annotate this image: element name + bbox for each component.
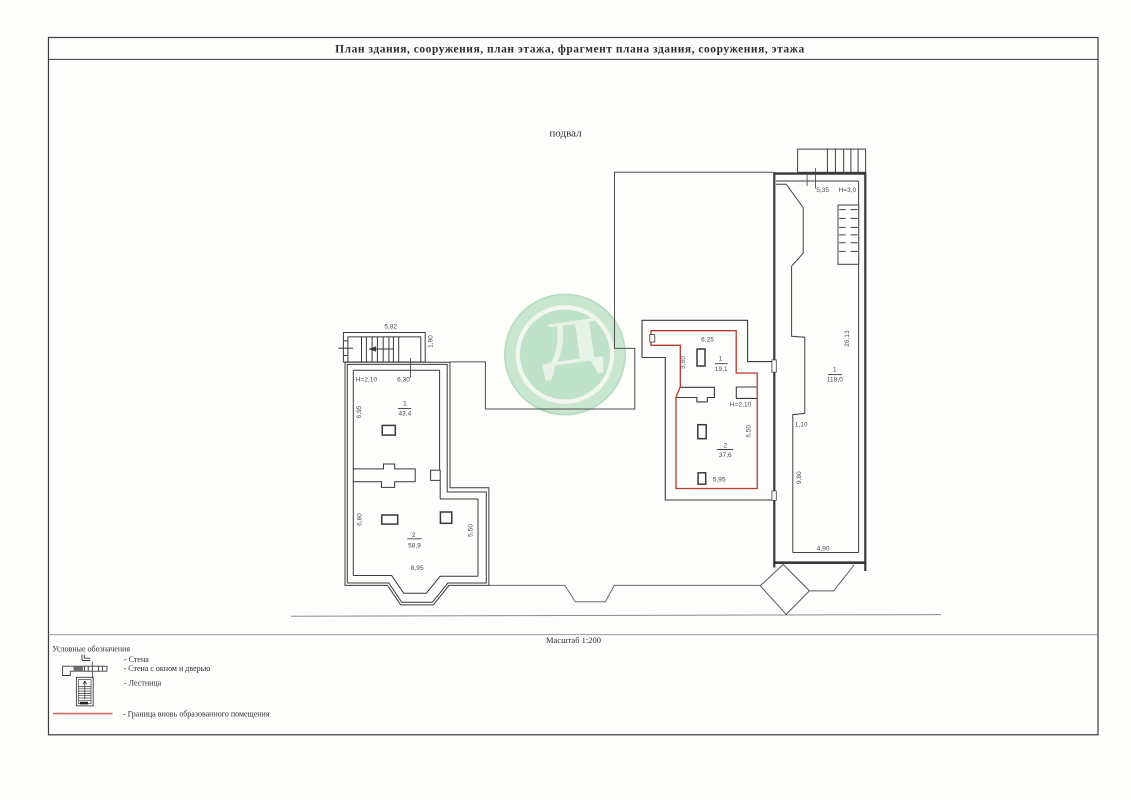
svg-text:1,90: 1,90 — [428, 335, 435, 348]
svg-text:1,10: 1,10 — [795, 421, 808, 428]
svg-text:- Граница вновь образованного: - Граница вновь образованного помещения — [123, 709, 270, 718]
svg-text:Условные обозначения: Условные обозначения — [52, 645, 130, 654]
svg-text:- Стена с окном и дверью: - Стена с окном и дверью — [124, 664, 211, 673]
svg-text:6,80: 6,80 — [357, 513, 364, 526]
svg-text:5,82: 5,82 — [384, 324, 397, 331]
svg-text:58,9: 58,9 — [408, 542, 421, 549]
svg-text:37,6: 37,6 — [719, 452, 732, 459]
svg-text:1: 1 — [403, 401, 407, 408]
svg-text:Н=2,10: Н=2,10 — [356, 377, 378, 384]
svg-text:Масштаб 1:200: Масштаб 1:200 — [546, 635, 601, 645]
svg-text:- Стена: - Стена — [124, 655, 149, 664]
svg-text:Н=2,10: Н=2,10 — [730, 401, 752, 408]
svg-text:26,13: 26,13 — [844, 330, 851, 347]
svg-text:5,50: 5,50 — [467, 524, 474, 537]
svg-text:Н=3,0: Н=3,0 — [839, 187, 857, 194]
svg-text:6,50: 6,50 — [745, 424, 752, 437]
svg-text:9,80: 9,80 — [796, 471, 803, 484]
svg-text:- Лестница: - Лестница — [124, 679, 162, 688]
svg-text:118,0: 118,0 — [827, 377, 843, 384]
svg-text:43,4: 43,4 — [398, 410, 411, 417]
svg-text:4,90: 4,90 — [817, 546, 830, 553]
svg-text:Д: Д — [534, 304, 606, 382]
svg-text:6,95: 6,95 — [356, 405, 363, 418]
svg-text:19,1: 19,1 — [715, 366, 728, 373]
svg-text:2: 2 — [412, 532, 416, 539]
svg-text:5,35: 5,35 — [816, 187, 829, 194]
svg-text:подвал: подвал — [549, 128, 582, 140]
svg-text:3,60: 3,60 — [680, 356, 687, 369]
svg-text:8,95: 8,95 — [411, 565, 424, 572]
svg-text:План здания, сооружения, план: План здания, сооружения, план этажа, фра… — [335, 43, 805, 55]
svg-text:6,30: 6,30 — [397, 377, 410, 384]
svg-text:1: 1 — [719, 356, 723, 363]
svg-text:1: 1 — [833, 367, 837, 374]
svg-text:5,95: 5,95 — [713, 476, 726, 483]
svg-text:6,25: 6,25 — [701, 337, 714, 344]
svg-text:2: 2 — [723, 442, 727, 449]
